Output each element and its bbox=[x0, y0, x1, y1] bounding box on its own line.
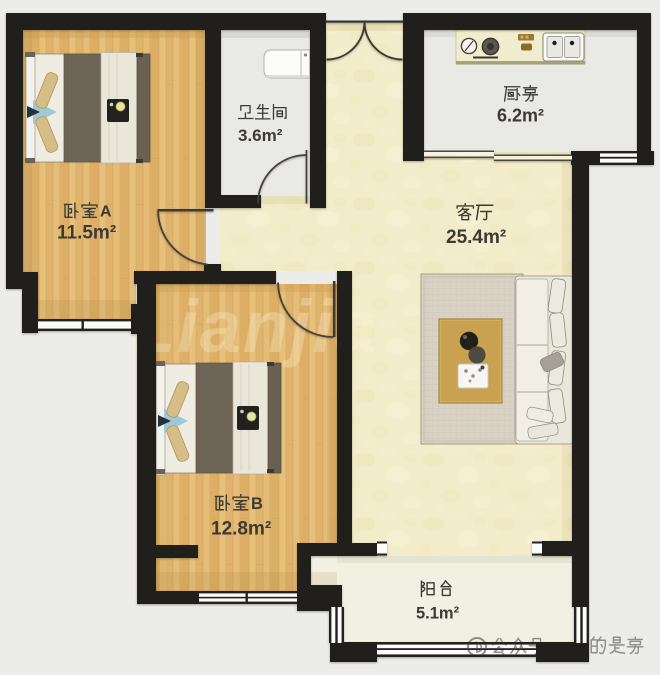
svg-text:12.8m²: 12.8m² bbox=[211, 519, 271, 540]
svg-text:3.6m²: 3.6m² bbox=[238, 126, 283, 145]
svg-text:5.1m²: 5.1m² bbox=[416, 605, 460, 623]
svg-text:B: B bbox=[251, 495, 263, 513]
svg-text:25.4m²: 25.4m² bbox=[446, 227, 506, 248]
svg-text:11.5m²: 11.5m² bbox=[57, 223, 116, 244]
svg-text:A: A bbox=[100, 204, 112, 221]
svg-text:6.2m²: 6.2m² bbox=[497, 106, 544, 126]
